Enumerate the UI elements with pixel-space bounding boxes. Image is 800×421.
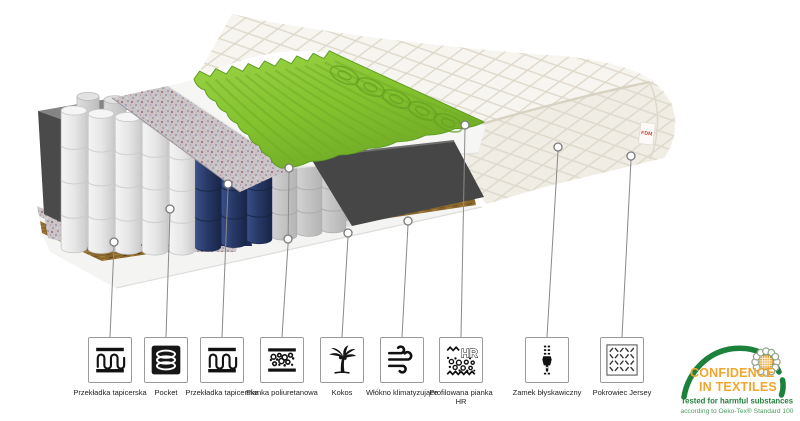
coconut-icon xyxy=(320,337,364,383)
upholstery-insert-icon xyxy=(88,337,132,383)
polyurethane-foam-icon xyxy=(260,337,304,383)
fdm-brand-tag: FDM xyxy=(638,122,655,145)
jersey-cover-icon xyxy=(600,337,644,383)
cert-title-line1: CONFIDENCE xyxy=(690,366,775,380)
cert-note: according to Oeko-Tex® Standard 100 xyxy=(681,407,794,415)
cert-subtitle: Tested for harmful substances xyxy=(681,397,794,406)
pocket-spring-icon xyxy=(144,337,188,383)
certification-logo: CONFIDENCE IN TEXTILES Tested for harmfu… xyxy=(676,340,798,418)
profiled-hr-foam-icon: HR xyxy=(439,337,483,383)
legend-item-label: Zamek błyskawiczny xyxy=(510,388,584,397)
oeko-tex-logo: CONFIDENCE IN TEXTILES Tested for harmfu… xyxy=(676,340,798,418)
legend-item-label: Profilowana pianka HR xyxy=(424,388,498,407)
mattress-diagram-page: FDM xyxy=(0,0,800,421)
legend-item-label: Pokrowiec Jersey xyxy=(585,388,659,397)
zipper-icon xyxy=(525,337,569,383)
climate-fiber-icon xyxy=(380,337,424,383)
cert-title-line2: IN TEXTILES xyxy=(699,380,777,394)
upholstery-insert-icon xyxy=(200,337,244,383)
